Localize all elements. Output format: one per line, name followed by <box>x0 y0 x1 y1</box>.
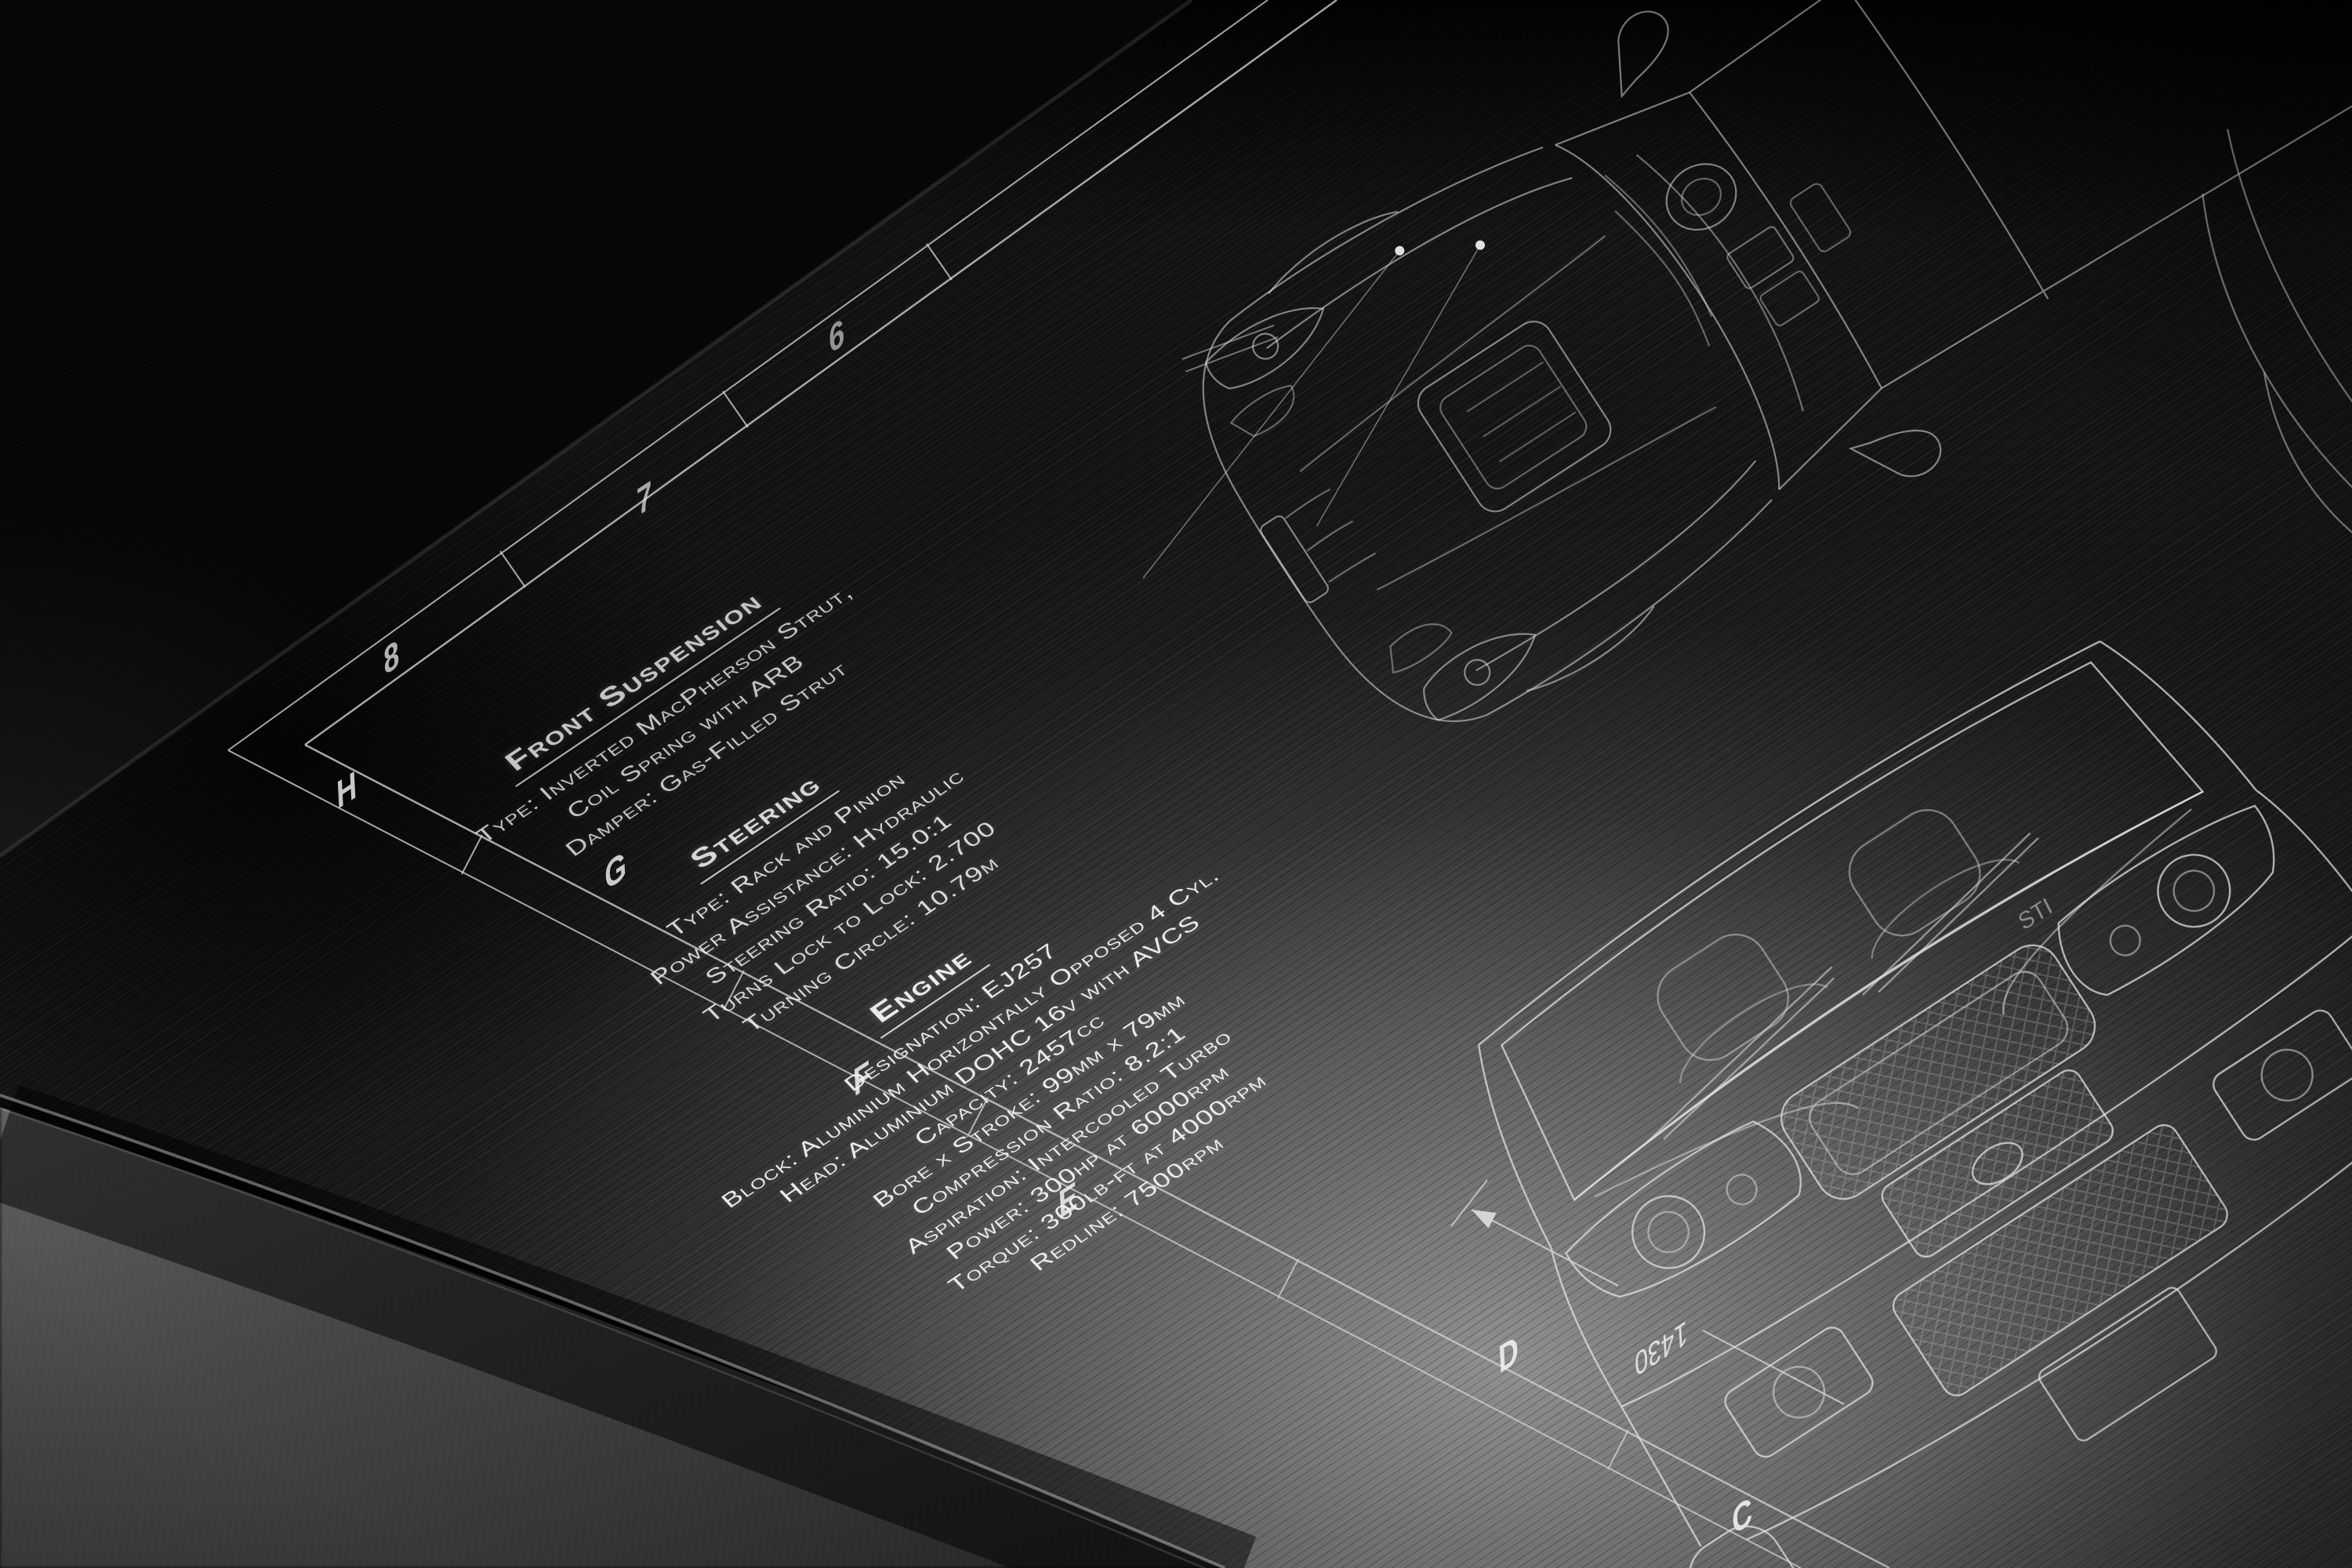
wiper-arcs <box>1595 165 1729 349</box>
grid-label-col-8: 8 <box>383 631 400 684</box>
dashboard-arc <box>1636 142 1823 411</box>
headlight-left <box>1558 1109 1815 1323</box>
tire-left <box>1675 1512 1855 1568</box>
grid-label-row-h: H <box>336 762 358 818</box>
leader-line-2 <box>1237 245 1560 526</box>
projector-left-inner <box>1641 1204 1697 1260</box>
wheel-left-spokes <box>1711 1559 1811 1568</box>
roof-front-edge <box>1690 89 1888 388</box>
steering-wheel <box>1654 151 1749 243</box>
blueprint-overlay: 6 7 8 H G F E D C <box>0 0 2352 1568</box>
car-front-view: STI <box>1368 560 2352 1568</box>
wheel-left-rim <box>1711 1559 1811 1568</box>
photo-scene: 6 7 8 H G F E D C <box>0 0 2352 1568</box>
bumper-intake-left <box>1229 380 1305 445</box>
headrest-left <box>1646 923 1800 1073</box>
a-pillars <box>1555 68 1897 489</box>
bumper-intake-right <box>1379 612 1455 677</box>
fog-recess-left <box>1720 1323 1877 1461</box>
headrest-right <box>1837 798 1991 948</box>
indicator-left <box>1721 1169 1762 1210</box>
body-front-outline <box>1155 321 1486 764</box>
front-plate <box>1258 514 1330 604</box>
projector-left-outer <box>1619 1182 1719 1282</box>
fog-recess-right <box>2209 1006 2352 1145</box>
headlight-right <box>1413 614 1548 726</box>
projector-right-outer <box>2144 841 2244 941</box>
side-mirror-left <box>1588 2 1686 96</box>
wheel-left <box>1711 1559 1811 1568</box>
car-side-partial <box>2122 40 2352 727</box>
projector-right-inner <box>2166 863 2222 919</box>
grid-label-row-c: C <box>1731 1488 1753 1544</box>
leader-dot-2 <box>1474 238 1487 252</box>
dimension-line-1 <box>1472 1210 1618 1286</box>
sti-badge: STI <box>2014 893 2056 936</box>
leader-callouts <box>1067 205 1564 620</box>
scoop-vent-lines <box>1467 361 1577 462</box>
grid-label-col-7: 7 <box>636 472 653 524</box>
map-light <box>1788 182 1853 254</box>
side-mirror-right <box>1851 406 1949 499</box>
steering-wheel-inner <box>1675 172 1728 223</box>
leader-line-1 <box>1069 251 1473 579</box>
dimension-label: 1430 <box>1634 1313 1689 1384</box>
headlight-right-lens <box>1460 655 1494 690</box>
partial-body-curves <box>2142 40 2352 714</box>
dimension-arrow <box>1472 1210 1497 1229</box>
grille-slots <box>1285 487 1376 584</box>
grid-label-col-6: 6 <box>828 310 845 362</box>
small-frame-box <box>1182 325 1278 372</box>
fog-lamp-right <box>2252 1040 2322 1111</box>
partial-fender-arc <box>2245 365 2352 591</box>
grid-ticks-top <box>500 244 952 587</box>
indicator-right <box>2105 920 2146 960</box>
windshield-base <box>1555 123 1813 489</box>
car-top-view <box>1032 0 2352 862</box>
